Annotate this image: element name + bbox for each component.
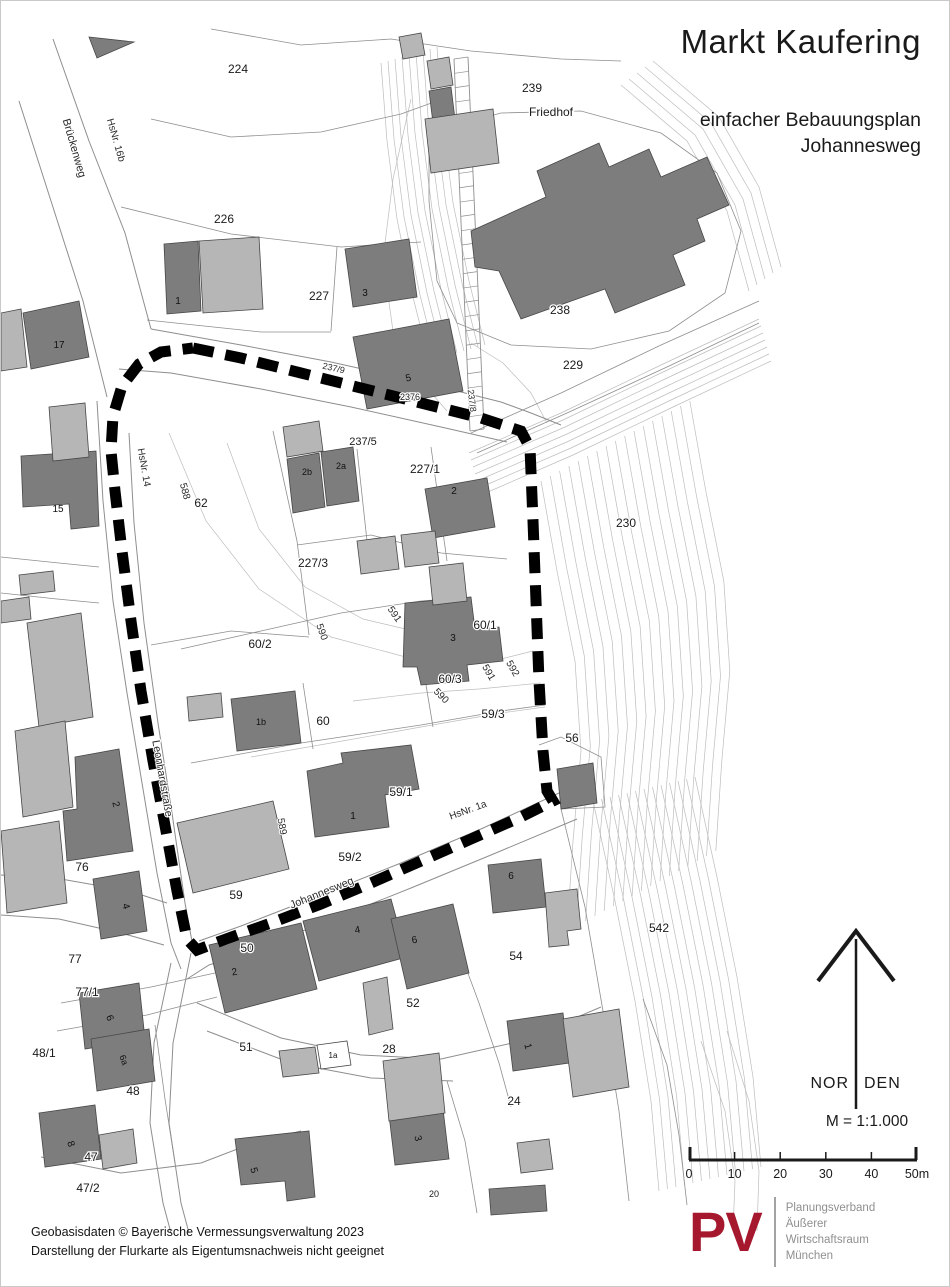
parcel-line [643, 999, 687, 1205]
contour-line [678, 781, 744, 1171]
scale-tick-label: 0 [686, 1167, 693, 1181]
building [507, 1013, 569, 1071]
map-scale-label: M = 1:1.000 [826, 1113, 909, 1130]
building [401, 531, 439, 567]
building [488, 859, 546, 913]
parcel-number-label: 48 [126, 1084, 140, 1098]
north-label-left: NOR [810, 1075, 849, 1092]
parcel-number-label: 230 [616, 516, 636, 530]
parcel-number-label: 47/2 [76, 1181, 100, 1195]
building [303, 899, 407, 981]
plan-subtitle-line2: Johannesweg [501, 134, 921, 160]
contour-line [653, 421, 693, 871]
stairway-step [463, 272, 477, 274]
cadastral-map: 11715352b2a231b124246635166a81a 224239Fr… [1, 1, 950, 1287]
house-number-label: 3 [450, 633, 456, 644]
parcel-line [1, 557, 99, 567]
title-block: Markt Kaufering einfacher Bebauungsplan … [501, 23, 921, 160]
building [15, 721, 73, 817]
contour-line [471, 326, 761, 460]
parcel-number-label: 60/2 [248, 637, 272, 651]
parcel-number-label: 77 [68, 952, 82, 966]
building [545, 889, 581, 947]
parcel-line [303, 683, 313, 749]
building [563, 1009, 629, 1097]
parcel-line [447, 1081, 477, 1213]
road-edge [53, 39, 151, 329]
parcel-number-label: 62 [194, 496, 208, 510]
plan-title: Markt Kaufering [501, 23, 921, 61]
scale-tick-label: 50m [905, 1167, 929, 1181]
building [425, 109, 499, 173]
contour-line [475, 340, 765, 474]
street-name-label: 591 [479, 663, 497, 683]
stairway-step [455, 71, 469, 73]
pv-org-line1: Planungsverband [786, 1200, 876, 1216]
building [89, 37, 134, 58]
contour-line [473, 333, 763, 467]
street-name-label: Leonhardstraße [149, 739, 174, 818]
stairway-step [468, 386, 482, 388]
parcel-number-label: 59/3 [481, 707, 505, 721]
contour-line [625, 436, 665, 886]
building [391, 904, 469, 989]
contour-line [610, 797, 676, 1187]
building [1, 309, 27, 371]
parcel-number-label: 229 [563, 358, 583, 372]
pv-logo-abbr: PV [689, 1204, 762, 1260]
street-name-label: 592 [503, 659, 521, 679]
parcel-line [147, 320, 331, 332]
stairway-step [455, 86, 469, 88]
parcel-number-label: 60/3 [438, 672, 462, 686]
house-number-label: 6 [508, 871, 514, 882]
parcel-number-label: 227/1 [410, 462, 440, 476]
parcel-number-label: 238 [550, 303, 570, 317]
contour-line [681, 406, 721, 856]
parcel-number-label: 28 [382, 1042, 396, 1056]
parcel-number-label: 60 [316, 714, 330, 728]
parcel-number-label: 52 [406, 996, 420, 1010]
building [363, 977, 393, 1035]
building [427, 57, 453, 89]
parcel-line [121, 207, 421, 247]
pv-logo-org: Planungsverband Äußerer Wirtschaftsraum … [786, 1200, 876, 1264]
contour-line [593, 801, 659, 1191]
house-number-label: 2b [302, 467, 312, 477]
parcel-number-label: 51 [239, 1040, 253, 1054]
parcel-number-label: 2376 [400, 392, 420, 402]
building [425, 478, 495, 538]
road-edge [150, 963, 171, 1233]
parcel-line [471, 301, 759, 433]
parcel-line [151, 101, 437, 137]
parcel-number-label: 227 [309, 289, 329, 303]
contour-line [687, 779, 753, 1169]
house-number-label: 1 [350, 811, 356, 822]
building [177, 801, 289, 893]
contour-line [578, 461, 618, 911]
street-name-label: HsNr. 16b [104, 117, 127, 163]
street-name-label: HsNr. 14 [135, 447, 153, 488]
street-name-label: HsNr. 1a [448, 799, 489, 823]
contour-line [634, 431, 674, 881]
building [399, 33, 425, 59]
stairway-step [460, 186, 474, 188]
house-number-label: 2 [451, 486, 457, 497]
street-name-label: 590 [431, 686, 451, 706]
house-number-label: 17 [53, 340, 65, 351]
parcel-number-label: 77/1 [75, 985, 99, 999]
contour-line [477, 347, 767, 481]
scale-tick-label: 20 [773, 1167, 787, 1181]
stairway-step [467, 357, 481, 359]
building [345, 239, 417, 307]
building [429, 563, 467, 605]
plan-subtitle-line1: einfacher Bebauungsplan [501, 108, 921, 134]
building [199, 237, 263, 313]
contour-line [479, 354, 769, 488]
parcel-number-label: 59/2 [338, 850, 362, 864]
building [19, 571, 55, 595]
contour-line [671, 411, 711, 861]
building [99, 1129, 137, 1169]
parcel-number-label: 59 [229, 888, 243, 902]
building [471, 143, 729, 319]
pv-org-line2: Äußerer [786, 1216, 876, 1232]
street-name-label: 590 [313, 622, 329, 642]
house-number-label: 15 [52, 504, 64, 515]
contour-line [569, 466, 609, 916]
stairway-step [461, 214, 475, 216]
parcel-number-label: 47 [84, 1150, 98, 1164]
parcel-number-label: 56 [565, 731, 579, 745]
contour-line [644, 789, 710, 1179]
parcel-number-label: 224 [228, 62, 248, 76]
contour-line [381, 63, 429, 361]
contour-line [615, 441, 655, 891]
copyright-note: Geobasisdaten © Bayerische Vermessungsve… [31, 1223, 384, 1262]
building [21, 451, 99, 529]
parcel-number-label: 54 [509, 949, 523, 963]
parcel-number-label: 24 [507, 1094, 521, 1108]
building [235, 1131, 315, 1201]
stairway-step [465, 315, 479, 317]
parcel-number-label: 48/1 [32, 1046, 56, 1060]
contour-line [541, 481, 581, 931]
north-arrow: NOR DEN M = 1:1.000 [810, 931, 908, 1130]
contour-line [643, 426, 683, 876]
house-number-label: 1 [175, 296, 181, 307]
scale-bar: 0 10 20 30 40 50m [686, 1147, 930, 1181]
building [1, 821, 67, 913]
copyright-line1: Geobasisdaten © Bayerische Vermessungsve… [31, 1223, 384, 1242]
building [557, 763, 597, 809]
building [383, 1053, 445, 1121]
street-name-label: 588 [177, 482, 192, 501]
contour-line [636, 791, 702, 1181]
contour-line [550, 476, 590, 926]
parcel-number-label: 237/5 [349, 436, 377, 448]
building [164, 241, 201, 314]
contour-line [690, 401, 730, 851]
building [287, 453, 325, 513]
building [517, 1139, 553, 1173]
plan-sheet: 11715352b2a231b124246635166a81a 224239Fr… [0, 0, 950, 1287]
parcel-number-label: 50 [240, 941, 254, 955]
contour-line [627, 793, 693, 1183]
north-label-right: DEN [864, 1075, 901, 1092]
buildings: 11715352b2a231b124246635166a81a [1, 33, 729, 1215]
pv-logo-divider [774, 1197, 776, 1267]
building [279, 1047, 319, 1077]
parcel-number-label: 76 [75, 860, 89, 874]
stairway-step [460, 200, 474, 202]
parcel-line [331, 247, 337, 331]
house-number-label: 1a [329, 1051, 338, 1060]
building [357, 536, 399, 574]
street-name-label: 237/9 [322, 361, 346, 376]
scale-tick-label: 10 [728, 1167, 742, 1181]
house-number-label: 2a [336, 461, 346, 471]
parcel-number-label: 542 [649, 921, 669, 935]
copyright-line2: Darstellung der Flurkarte als Eigentumsn… [31, 1242, 384, 1261]
parcel-number-label: 20 [429, 1189, 439, 1199]
stairway-step [468, 372, 482, 374]
scale-tick-label: 40 [864, 1167, 878, 1181]
house-number-label: 3 [362, 288, 368, 299]
street-name-label: 237/8 [466, 389, 479, 413]
parcel-number-label: 60/1 [473, 618, 497, 632]
building [283, 421, 323, 457]
building [489, 1185, 547, 1215]
contour-line [619, 795, 685, 1185]
parcel-number-label: 226 [214, 212, 234, 226]
building [187, 693, 223, 721]
plan-subtitle: einfacher Bebauungsplan Johannesweg [501, 108, 921, 160]
pv-org-line3: Wirtschaftsraum [786, 1232, 876, 1248]
road-edge [169, 953, 191, 1233]
building [1, 597, 31, 623]
stairway-step [454, 57, 468, 59]
building [321, 447, 359, 506]
building [49, 403, 89, 461]
contour-line [661, 785, 727, 1175]
scale-tick-label: 30 [819, 1167, 833, 1181]
building [27, 613, 93, 727]
building [23, 301, 89, 369]
contour-line [560, 471, 600, 921]
contour-line [388, 61, 436, 359]
pv-org-line4: München [786, 1248, 876, 1264]
pv-logo: PV Planungsverband Äußerer Wirtschaftsra… [689, 1197, 875, 1267]
stairway-step [469, 415, 483, 417]
parcel-number-label: 59/1 [389, 785, 413, 799]
building [63, 749, 133, 861]
parcel-number-label: 227/3 [298, 556, 328, 570]
contour-line [695, 777, 761, 1167]
stairway-step [459, 171, 473, 173]
street-name-label: 591 [385, 605, 404, 625]
stairway-step [456, 100, 470, 102]
house-number-label: 1b [256, 717, 266, 727]
